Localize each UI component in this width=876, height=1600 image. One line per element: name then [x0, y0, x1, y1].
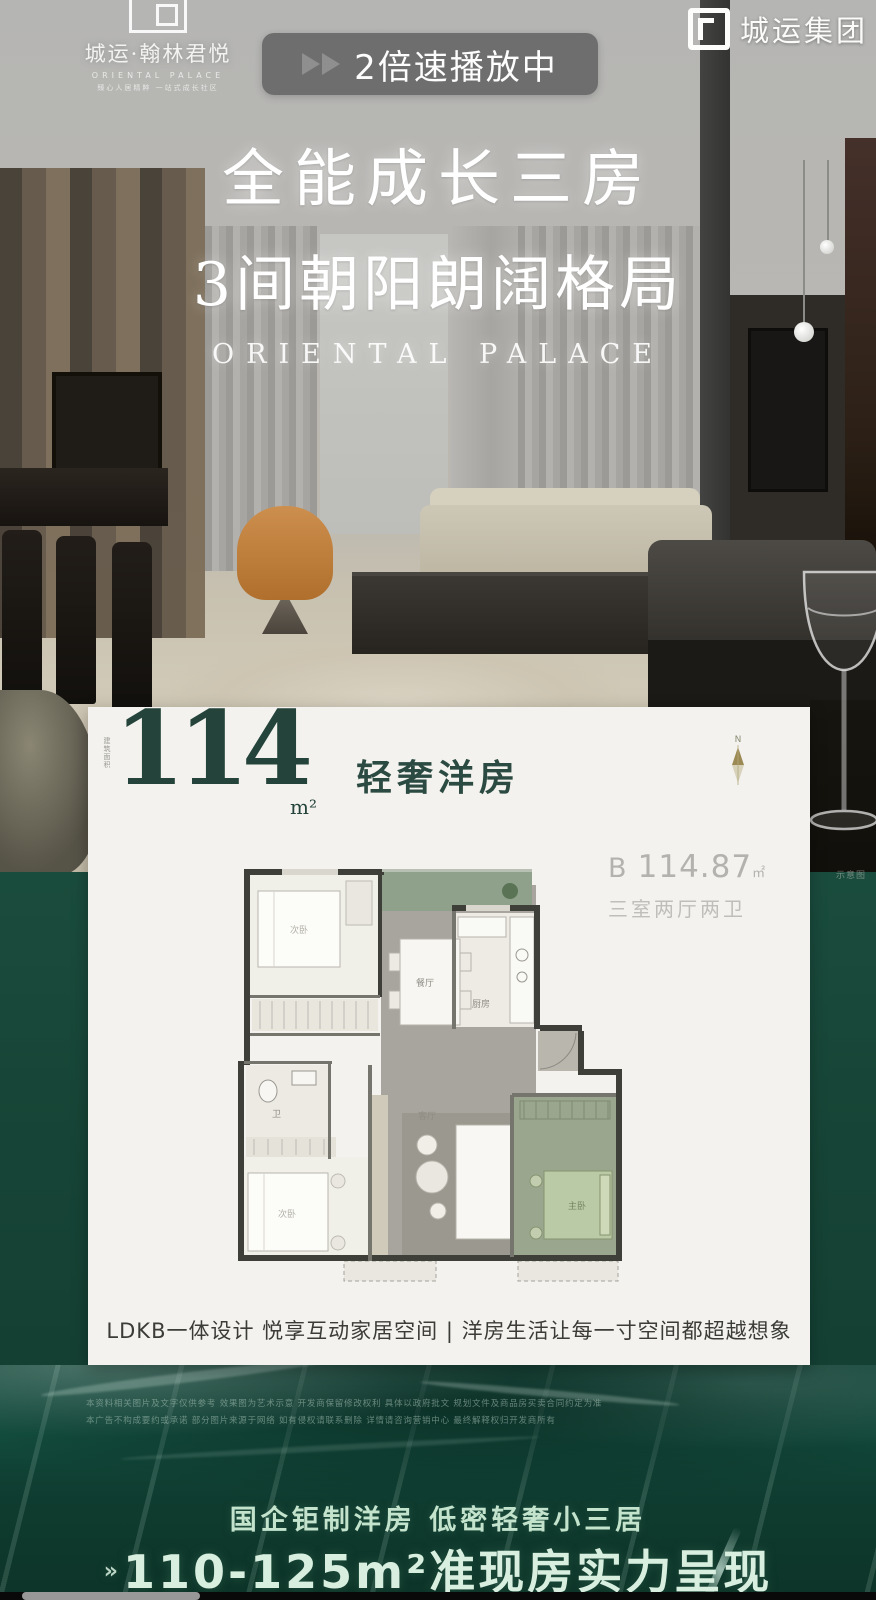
group-logo-text: 城运集团: [740, 8, 868, 50]
ad-video-frame: 城运·翰林君悦 ORIENTAL PALACE 臻心人居精粹 一站式成长社区 城…: [0, 0, 876, 1600]
headline-line2: 3间朝阳朗阔格局: [0, 236, 876, 323]
lounge-chair-left: [0, 690, 100, 875]
fast-forward-icon: [302, 53, 340, 75]
coffee-table: [352, 572, 648, 654]
project-logo-title: 城运·翰林君悦: [58, 38, 258, 68]
room-label-master: 主卧: [568, 1200, 586, 1212]
disclaimer-line1: 本资料相关图片及文字仅供参考 效果图为艺术示意 开发商保留修改权利 具体以政府批…: [86, 1396, 746, 1413]
bar-stool: [56, 536, 96, 704]
project-logo-subtitle: ORIENTAL PALACE: [58, 71, 258, 80]
room-label-bed-left: 次卧: [278, 1208, 296, 1220]
floorplan-drawing: 次卧 餐厅 厨房 卫 次卧 客厅 主卧: [226, 855, 650, 1293]
slogan-prefix-icon: »: [104, 1559, 121, 1584]
area-unit: m²: [290, 795, 317, 819]
bar-stool: [112, 542, 152, 710]
headline-english: ORIENTAL PALACE: [0, 339, 876, 370]
hero-headline: 全能成长三房 3间朝阳朗阔格局 ORIENTAL PALACE: [0, 128, 876, 370]
floorplan-card: 建筑面积 114 m² 轻奢洋房 N B 114.87㎡ 三室两厅两卫: [88, 707, 810, 1365]
project-logo: 城运·翰林君悦 ORIENTAL PALACE 臻心人居精粹 一站式成长社区: [58, 0, 258, 93]
slogan-small: 国企钜制洋房 低密轻奢小三居: [0, 1498, 876, 1537]
room-label-dining: 餐厅: [416, 977, 434, 989]
playback-speed-label: 2倍速播放中: [354, 40, 558, 89]
playback-speed-indicator[interactable]: 2倍速播放中: [262, 33, 598, 95]
room-label-bath: 卫: [272, 1110, 281, 1120]
card-tagline: LDKB一体设计 悦享互动家居空间 | 洋房生活让每一寸空间都超越想象: [88, 1315, 810, 1345]
disclaimer-line2: 本广告不构成要约或承诺 部分图片来源于网络 如有侵权请联系删除 详情请咨询营销中…: [86, 1413, 746, 1430]
room-label-bed-top: 次卧: [290, 924, 308, 936]
headline-line1: 全能成长三房: [0, 128, 876, 218]
wall-art-left: [52, 372, 162, 480]
bar-stool: [2, 530, 42, 698]
schematic-note: 示意图: [836, 868, 866, 881]
compass-icon: N: [724, 735, 752, 797]
slogan-large-text: 110-125m²准现房实力呈现: [123, 1545, 772, 1599]
slogan-large: »110-125m²准现房实力呈现: [0, 1536, 876, 1600]
room-label-living: 客厅: [418, 1110, 436, 1122]
compass-north-label: N: [724, 735, 752, 745]
project-logo-tagline: 臻心人居精粹 一站式成长社区: [58, 83, 258, 93]
group-logo-icon: [688, 8, 730, 50]
bar-counter: [0, 468, 168, 526]
product-type-label: 轻奢洋房: [356, 749, 520, 801]
area-side-label: 建筑面积: [102, 737, 112, 769]
group-logo: 城运集团: [688, 8, 868, 50]
unit-area: 114.87: [638, 849, 752, 885]
disclaimer: 本资料相关图片及文字仅供参考 效果图为艺术示意 开发商保留修改权利 具体以政府批…: [86, 1396, 746, 1430]
room-label-kitchen: 厨房: [472, 998, 490, 1010]
area-value: 114: [114, 693, 306, 805]
chair-base: [262, 600, 308, 634]
video-progress-played: [22, 1592, 200, 1600]
window-logo-icon: [129, 0, 187, 33]
unit-area-unit: ㎡: [752, 866, 765, 881]
orange-lounge-chair: [237, 506, 333, 600]
